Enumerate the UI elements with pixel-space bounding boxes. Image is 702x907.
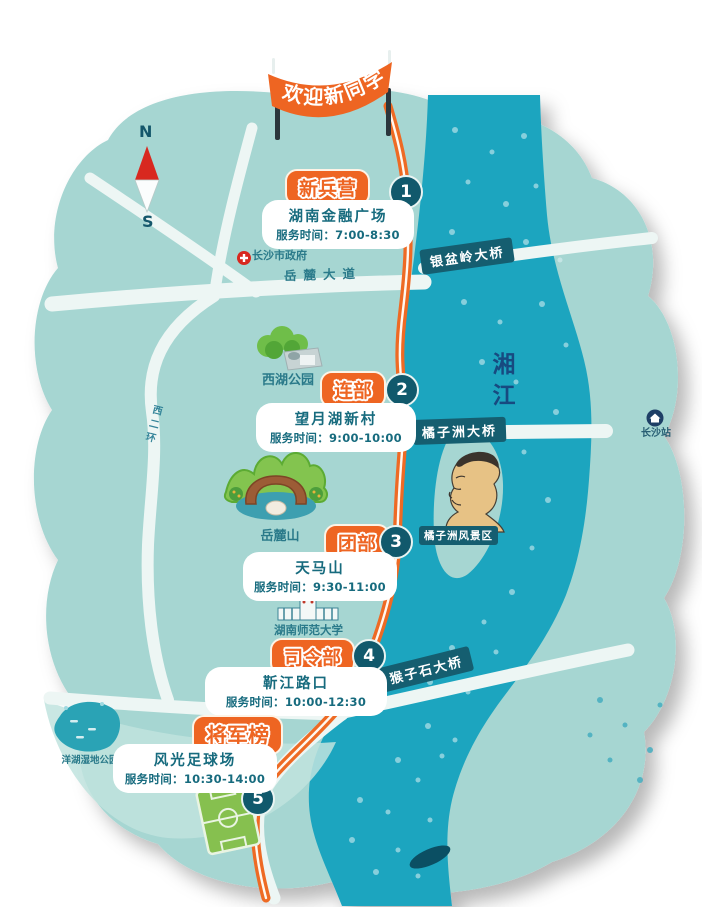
stop-4-time: 服务时间：10:00-12:30 bbox=[211, 694, 381, 710]
west-lake-park-label: 西湖公园 bbox=[252, 374, 324, 389]
campus-welcome-route-map: 欢迎新同学 N S 湘江 岳麓大道 西二环 长沙市政府 西湖公园 岳麓山 湖南师… bbox=[0, 0, 702, 907]
stop-1-card: 湖南金融广场 服务时间：7:00-8:30 bbox=[262, 200, 414, 249]
stop-2-place: 望月湖新村 bbox=[262, 408, 410, 429]
yuelu-mountain-label: 岳麓山 bbox=[250, 530, 310, 545]
stop-3-place: 天马山 bbox=[249, 557, 391, 578]
compass-north-label: N bbox=[139, 122, 152, 141]
orange-isle-scenic-area-label: 橘子洲风景区 bbox=[419, 526, 498, 545]
map-graphics: 欢迎新同学 bbox=[0, 0, 702, 907]
city-government-label: 长沙市政府 bbox=[252, 250, 307, 263]
city-government-icon bbox=[237, 251, 251, 265]
stop-2-badge: 2 bbox=[385, 373, 419, 407]
banner-pole-right bbox=[386, 88, 391, 136]
changsha-station-icon bbox=[647, 410, 664, 427]
stop-2-card: 望月湖新村 服务时间：9:00-10:00 bbox=[256, 403, 416, 452]
river-name-label: 湘江 bbox=[484, 352, 518, 414]
hunan-normal-university-label: 湖南师范大学 bbox=[266, 624, 351, 637]
stop-4-card: 靳江路口 服务时间：10:00-12:30 bbox=[205, 667, 387, 716]
stop-1-time: 服务时间：7:00-8:30 bbox=[268, 227, 408, 243]
stop-2-time: 服务时间：9:00-10:00 bbox=[262, 430, 410, 446]
stop-4-place: 靳江路口 bbox=[211, 672, 381, 693]
changsha-station-label: 长沙站 bbox=[630, 428, 682, 440]
stop-1-place: 湖南金融广场 bbox=[268, 205, 408, 226]
stop-5-time: 服务时间：10:30-14:00 bbox=[119, 771, 271, 787]
stop-5-card: 风光足球场 服务时间：10:30-14:00 bbox=[113, 744, 277, 793]
stop-3-time: 服务时间：9:30-11:00 bbox=[249, 579, 391, 595]
stop-5-place: 风光足球场 bbox=[119, 749, 271, 770]
stop-3-card: 天马山 服务时间：9:30-11:00 bbox=[243, 552, 397, 601]
yuelu-avenue-label: 岳麓大道 bbox=[284, 267, 362, 284]
compass-south-label: S bbox=[142, 212, 154, 231]
juzizhou-bridge-label: 橘子洲大桥 bbox=[413, 417, 507, 445]
